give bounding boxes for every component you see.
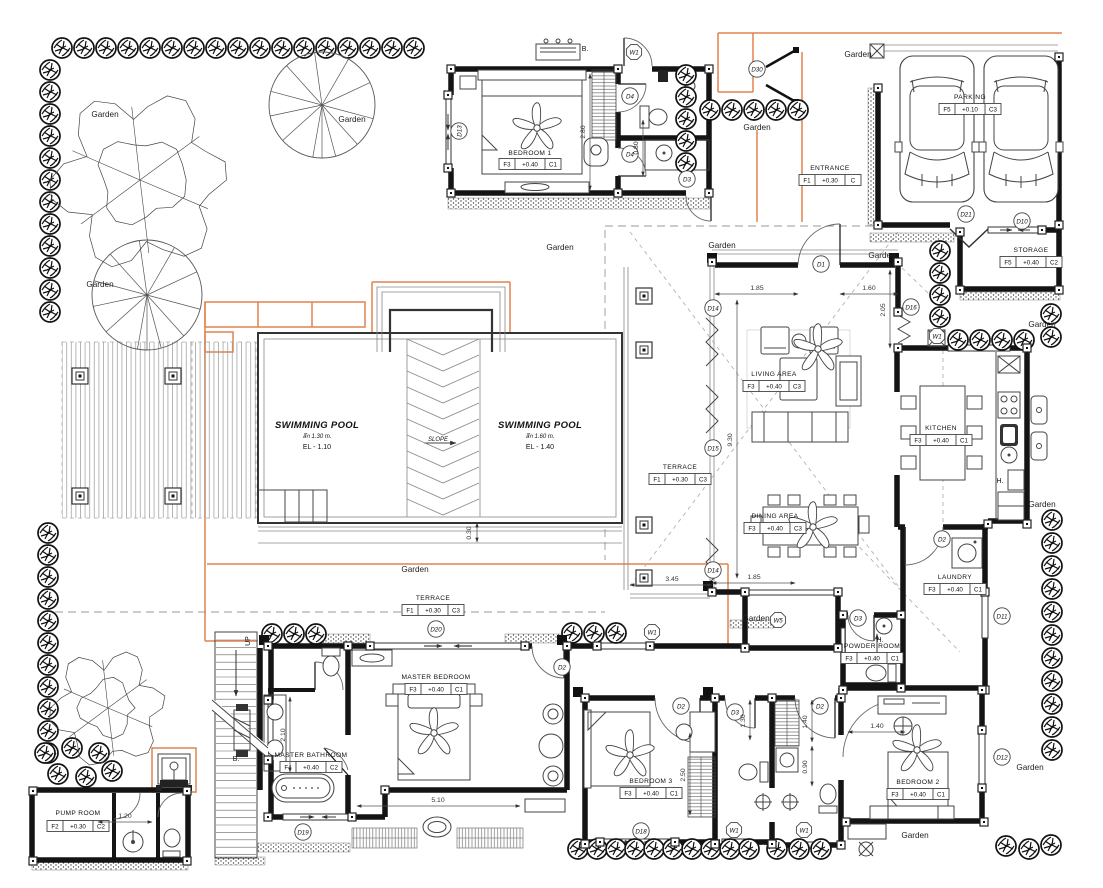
floor-plan-drawing: SWIMMING POOL ลึก 1.30 m. EL - 1.10 SWIM… [0, 0, 1103, 888]
room-spec-cell: +0.40 [303, 764, 319, 771]
door-tag-label: W5 [773, 617, 783, 624]
door-tag-label: D4 [626, 93, 634, 100]
shrub-icon [948, 330, 968, 350]
room-spec-cell: C2 [1050, 259, 1058, 266]
shrub-icon [272, 38, 292, 58]
door-tag-label: D3 [683, 176, 691, 183]
shrub-icon [284, 624, 304, 644]
dimension-label: 0.80 [633, 141, 640, 154]
parking-cars [895, 56, 1063, 202]
column-icon [636, 288, 652, 304]
room-spec-cell: F2 [51, 823, 59, 830]
shrub-icon [1042, 671, 1062, 691]
room-spec-cell: C3 [794, 525, 802, 532]
sofa [752, 412, 848, 442]
shrub-icon [316, 38, 336, 58]
garden-label: Garden [86, 280, 114, 289]
column-icon [636, 570, 652, 586]
room-spec-cell: F1 [653, 476, 661, 483]
shrub-icon [38, 545, 58, 565]
garden-label: Garden [546, 243, 574, 252]
bottom-deck [352, 817, 523, 848]
shrub-icon [96, 38, 116, 58]
room-spec-cell: F3 [891, 791, 899, 798]
shrub-icon [38, 677, 58, 697]
shrub-icon [992, 330, 1012, 350]
room-name: LAUNDRY [938, 574, 972, 581]
garden-label: Garden [742, 614, 770, 623]
dimension-label: 2.05 [880, 303, 887, 316]
room-spec-cell: C1 [891, 655, 899, 662]
shrub-icon [35, 743, 55, 763]
dimension-label: 9.30 [727, 433, 734, 446]
shrub-icon [360, 38, 380, 58]
shrub-icon [38, 567, 58, 587]
door-tag-label: D19 [297, 829, 309, 836]
b-label: B. [233, 756, 240, 763]
room-name: MASTER BEDROOM [402, 674, 471, 681]
garden-label: Garden [868, 251, 896, 260]
door-tag-label: D13 [456, 125, 463, 137]
room-spec-cell: C2 [97, 823, 105, 830]
room-spec-cell: +0.40 [933, 437, 949, 444]
shrub-icon [930, 263, 950, 283]
garden-label: Garden [844, 50, 872, 59]
room-spec-cell: F3 [747, 383, 755, 390]
shrub-icon [184, 38, 204, 58]
powder-room-furniture [866, 618, 896, 682]
shrub-icon [40, 104, 60, 124]
room-spec-cell: +0.40 [766, 383, 782, 390]
room-spec-cell: +0.40 [643, 790, 659, 797]
shrub-icon [1041, 327, 1061, 347]
room-spec-cell: C3 [699, 476, 707, 483]
bathroom3-furniture [739, 748, 837, 813]
shrub-icon [1042, 510, 1062, 530]
room-spec-cell: +0.40 [864, 655, 880, 662]
shrub-icon [644, 839, 664, 859]
room-name: TERRACE [416, 595, 451, 602]
door-tag-label: D2 [816, 703, 824, 710]
room-spec-cell: C3 [793, 383, 801, 390]
room-spec-cell: +0.30 [70, 823, 86, 830]
door-tag-label: D16 [905, 304, 917, 311]
room-spec-cell: +0.40 [910, 791, 926, 798]
shrub-icon [38, 699, 58, 719]
shrub-icon [228, 38, 248, 58]
room-spec-cell: F3 [409, 686, 417, 693]
garden-label: Garden [1016, 763, 1044, 772]
shrub-icon [811, 839, 831, 859]
room-spec-cell: F3 [845, 655, 853, 662]
shrub-icon [40, 192, 60, 212]
dimension-label: 2.50 [680, 768, 687, 781]
pool1-title: SWIMMING POOL [275, 420, 359, 431]
column-icon [636, 517, 652, 533]
room-spec-cell: F4 [284, 764, 292, 771]
spirit-house [156, 754, 192, 791]
room-spec-cell: C3 [989, 106, 997, 113]
column-icon [636, 342, 652, 358]
shrub-icon [682, 839, 702, 859]
room-spec-cell: F1 [406, 607, 414, 614]
shrub-icon [40, 280, 60, 300]
door-tag-label: W1 [729, 827, 738, 834]
room-spec-cell: F1 [803, 177, 811, 184]
garden-label: Garden [401, 565, 429, 574]
room-spec-cell: F3 [928, 586, 936, 593]
pool1-level: EL - 1.10 [303, 444, 331, 451]
room-spec-cell: F3 [748, 525, 756, 532]
door-tag-label: D18 [635, 828, 647, 835]
room-name: BEDROOM 3 [629, 778, 672, 785]
dimension-label: 1.30 [740, 714, 747, 727]
shrub-icon [404, 38, 424, 58]
shrub-icon [1042, 717, 1062, 737]
shrub-icon [700, 100, 720, 120]
room-spec-cell: +0.40 [947, 586, 963, 593]
shrub-icon [38, 611, 58, 631]
shrub-icon [625, 839, 645, 859]
door-tag-label: W1 [932, 333, 941, 340]
room-spec-cell: F3 [914, 437, 922, 444]
shrub-icon [38, 721, 58, 741]
garden-label: Garden [901, 831, 929, 840]
room-spec-cell: F5 [943, 106, 951, 113]
shrub-icon [38, 655, 58, 675]
dimension-label: 1.85 [750, 285, 763, 292]
shrub-icon [40, 82, 60, 102]
room-spec-cell: C [851, 177, 856, 184]
room-spec-cell: +0.30 [672, 476, 688, 483]
column-icon [72, 368, 88, 384]
shrub-icon [38, 523, 58, 543]
dimension-label: 1.20 [118, 813, 131, 820]
laundry-furniture [952, 538, 982, 568]
dimension-label: 2.80 [580, 125, 587, 138]
column-icon [72, 488, 88, 504]
slope-label: SLOPE [428, 437, 449, 443]
shrub-icon [766, 100, 786, 120]
door-tag-label: D2 [558, 664, 566, 671]
shrub-icon [930, 241, 950, 261]
door-tag-label: D3 [854, 615, 862, 622]
shrub-icon [306, 624, 326, 644]
toilet [649, 109, 667, 125]
garden-label: Garden [743, 123, 771, 132]
shrub-icon [606, 623, 626, 643]
shrub-icon [722, 100, 742, 120]
shrub-icon [1042, 533, 1062, 553]
shrub-icon [162, 38, 182, 58]
toilet [739, 764, 757, 780]
door-tag-label: D15 [707, 445, 719, 452]
kitchen-table [920, 386, 965, 480]
toilet [866, 665, 886, 681]
master-bathroom-furniture [264, 648, 340, 802]
shrub-icon [38, 589, 58, 609]
stove [998, 392, 1020, 418]
toilet [323, 656, 339, 676]
dimension-label: 0.90 [802, 760, 809, 773]
shrub-icon [40, 236, 60, 256]
desk [690, 712, 715, 752]
dimension-label: 3.45 [665, 576, 678, 583]
shrub-icon [788, 100, 808, 120]
shrub-icon [118, 38, 138, 58]
room-spec-cell: C3 [452, 607, 460, 614]
shrub-icon [744, 100, 764, 120]
garden-label: Garden [91, 110, 119, 119]
room-spec-cell: F3 [624, 790, 632, 797]
shrub-icon [140, 38, 160, 58]
shrub-icon [676, 87, 696, 107]
shrub-icon [382, 38, 402, 58]
door-tag-label: W1 [799, 827, 808, 834]
dimension-label: 0.30 [466, 526, 473, 539]
room-spec-cell: F3 [503, 161, 511, 168]
shrub-icon [1042, 579, 1062, 599]
shrub-icon [52, 38, 72, 58]
up-label: UP [245, 636, 252, 646]
door-tag-label: D12 [996, 754, 1008, 761]
garden-label: Garden [1028, 320, 1056, 329]
pool1-depth: ลึก 1.30 m. [303, 433, 332, 440]
shrub-icon [40, 302, 60, 322]
room-name: DINING AREA [752, 513, 799, 520]
door-tag-label: D1 [817, 261, 825, 268]
room-name: POWDER ROOM [844, 643, 900, 650]
b-label: B. [582, 46, 589, 53]
room-name: LIVING AREA [751, 371, 797, 378]
column-icon [165, 488, 181, 504]
pool2-title: SWIMMING POOL [498, 420, 582, 431]
room-name: BEDROOM 2 [896, 779, 939, 786]
wardrobes [592, 70, 799, 817]
shrub-icon [40, 214, 60, 234]
room-spec-cell: +0.30 [822, 177, 838, 184]
shrub-icon [739, 839, 759, 859]
dimension-label: 1.85 [747, 574, 760, 581]
h-label: H. [997, 478, 1004, 485]
shrub-icon [676, 131, 696, 151]
shrub-icon [1019, 839, 1039, 859]
shrub-icon [676, 109, 696, 129]
shrub-icon [1041, 835, 1061, 855]
room-spec-cell: +0.40 [767, 525, 783, 532]
toilet [820, 784, 836, 804]
water-heater [1031, 432, 1047, 460]
room-spec-cell: C1 [455, 686, 463, 693]
shrub-icon [1042, 556, 1062, 576]
door-tag-label: D20 [430, 626, 442, 633]
floor-plan-page: SWIMMING POOL ลึก 1.30 m. EL - 1.10 SWIM… [0, 0, 1103, 888]
room-spec-cell: +0.40 [428, 686, 444, 693]
room-spec-cell: +0.40 [522, 161, 538, 168]
shrub-icon [250, 38, 270, 58]
shrub-icon [789, 839, 809, 859]
shrub-icon [1042, 648, 1062, 668]
shrub-icon [930, 285, 950, 305]
wooden-deck [62, 342, 256, 518]
door-tag-label: W1 [629, 49, 638, 56]
shrub-icon [1042, 625, 1062, 645]
room-spec-cell: C2 [330, 764, 338, 771]
room-name: MASTER BATHROOM [275, 752, 348, 759]
washer [952, 538, 982, 568]
room-spec-cell: C1 [937, 791, 945, 798]
door-tag-label: D14 [707, 305, 719, 312]
door-tag-label: D30 [751, 66, 763, 73]
shrub-icon [338, 38, 358, 58]
shrub-icon [40, 258, 60, 278]
shrub-icon [676, 153, 696, 173]
pool2-level: EL - 1.40 [526, 444, 554, 451]
room-spec-cell: +0.10 [962, 106, 978, 113]
room-name: PARKING [954, 94, 986, 101]
column-icon [165, 368, 181, 384]
room-name: ENTRANCE [810, 165, 850, 172]
pump-room-fixtures [123, 829, 180, 857]
water-heater [1031, 396, 1047, 424]
dimension-label: 5.10 [431, 797, 444, 804]
room-spec-cell: F5 [1004, 259, 1012, 266]
door-tag-label: D14 [707, 567, 719, 574]
shrub-icon [206, 38, 226, 58]
door-tag-label: D2 [938, 536, 946, 543]
garden-label: Garden [1028, 500, 1056, 509]
shrub-icon [930, 307, 950, 327]
dimension-label: 1.60 [862, 285, 875, 292]
pool2-depth: ลึก 1.60 m. [526, 433, 555, 440]
room-name: TERRACE [663, 464, 698, 471]
shrub-icon [40, 148, 60, 168]
room-name: STORAGE [1014, 247, 1049, 254]
door-tag-label: D10 [1016, 218, 1028, 225]
door-tag-label: D2 [677, 703, 685, 710]
shrub-icon [48, 764, 68, 784]
garden-label: Garden [338, 115, 366, 124]
shrub-icon [89, 743, 109, 763]
room-name: BEDROOM 1 [508, 150, 551, 157]
dimension-label: 1.40 [870, 723, 883, 730]
dimension-label: 2.10 [280, 728, 287, 741]
shrub-icon [38, 633, 58, 653]
room-spec-cell: C1 [670, 790, 678, 797]
dimension-label: 1.40 [802, 715, 809, 728]
room-spec-cell: +0.40 [1023, 259, 1039, 266]
garden-label: Garden [708, 241, 736, 250]
shrub-icon [74, 38, 94, 58]
room-spec-cell: +0.30 [425, 607, 441, 614]
door-tag-label: D21 [960, 211, 971, 218]
shrub-icon [996, 836, 1016, 856]
room-name: KITCHEN [925, 425, 957, 432]
shrub-icon [970, 330, 990, 350]
shrub-icon [676, 65, 696, 85]
swimming-pool [258, 267, 710, 598]
shrub-icon [720, 839, 740, 859]
shrub-icon [1042, 740, 1062, 760]
toilet [164, 829, 180, 847]
door-tag-label: D11 [997, 613, 1008, 620]
door-tag-label: D3 [731, 709, 739, 716]
door-tag-label: W1 [647, 629, 656, 636]
room-name: PUMP ROOM [56, 810, 101, 817]
shrub-icon [40, 126, 60, 146]
shrub-icon [102, 761, 122, 781]
shrub-icon [76, 767, 96, 787]
shrub-icon [40, 60, 60, 80]
shrub-icon [1042, 694, 1062, 714]
shrub-icon [1042, 602, 1062, 622]
bedroom1-furniture [460, 39, 709, 193]
room-spec-cell: C1 [960, 437, 968, 444]
room-spec-cell: C1 [549, 161, 557, 168]
shrub-icon [606, 839, 626, 859]
room-spec-cell: C1 [974, 586, 982, 593]
shrub-icon [584, 623, 604, 643]
